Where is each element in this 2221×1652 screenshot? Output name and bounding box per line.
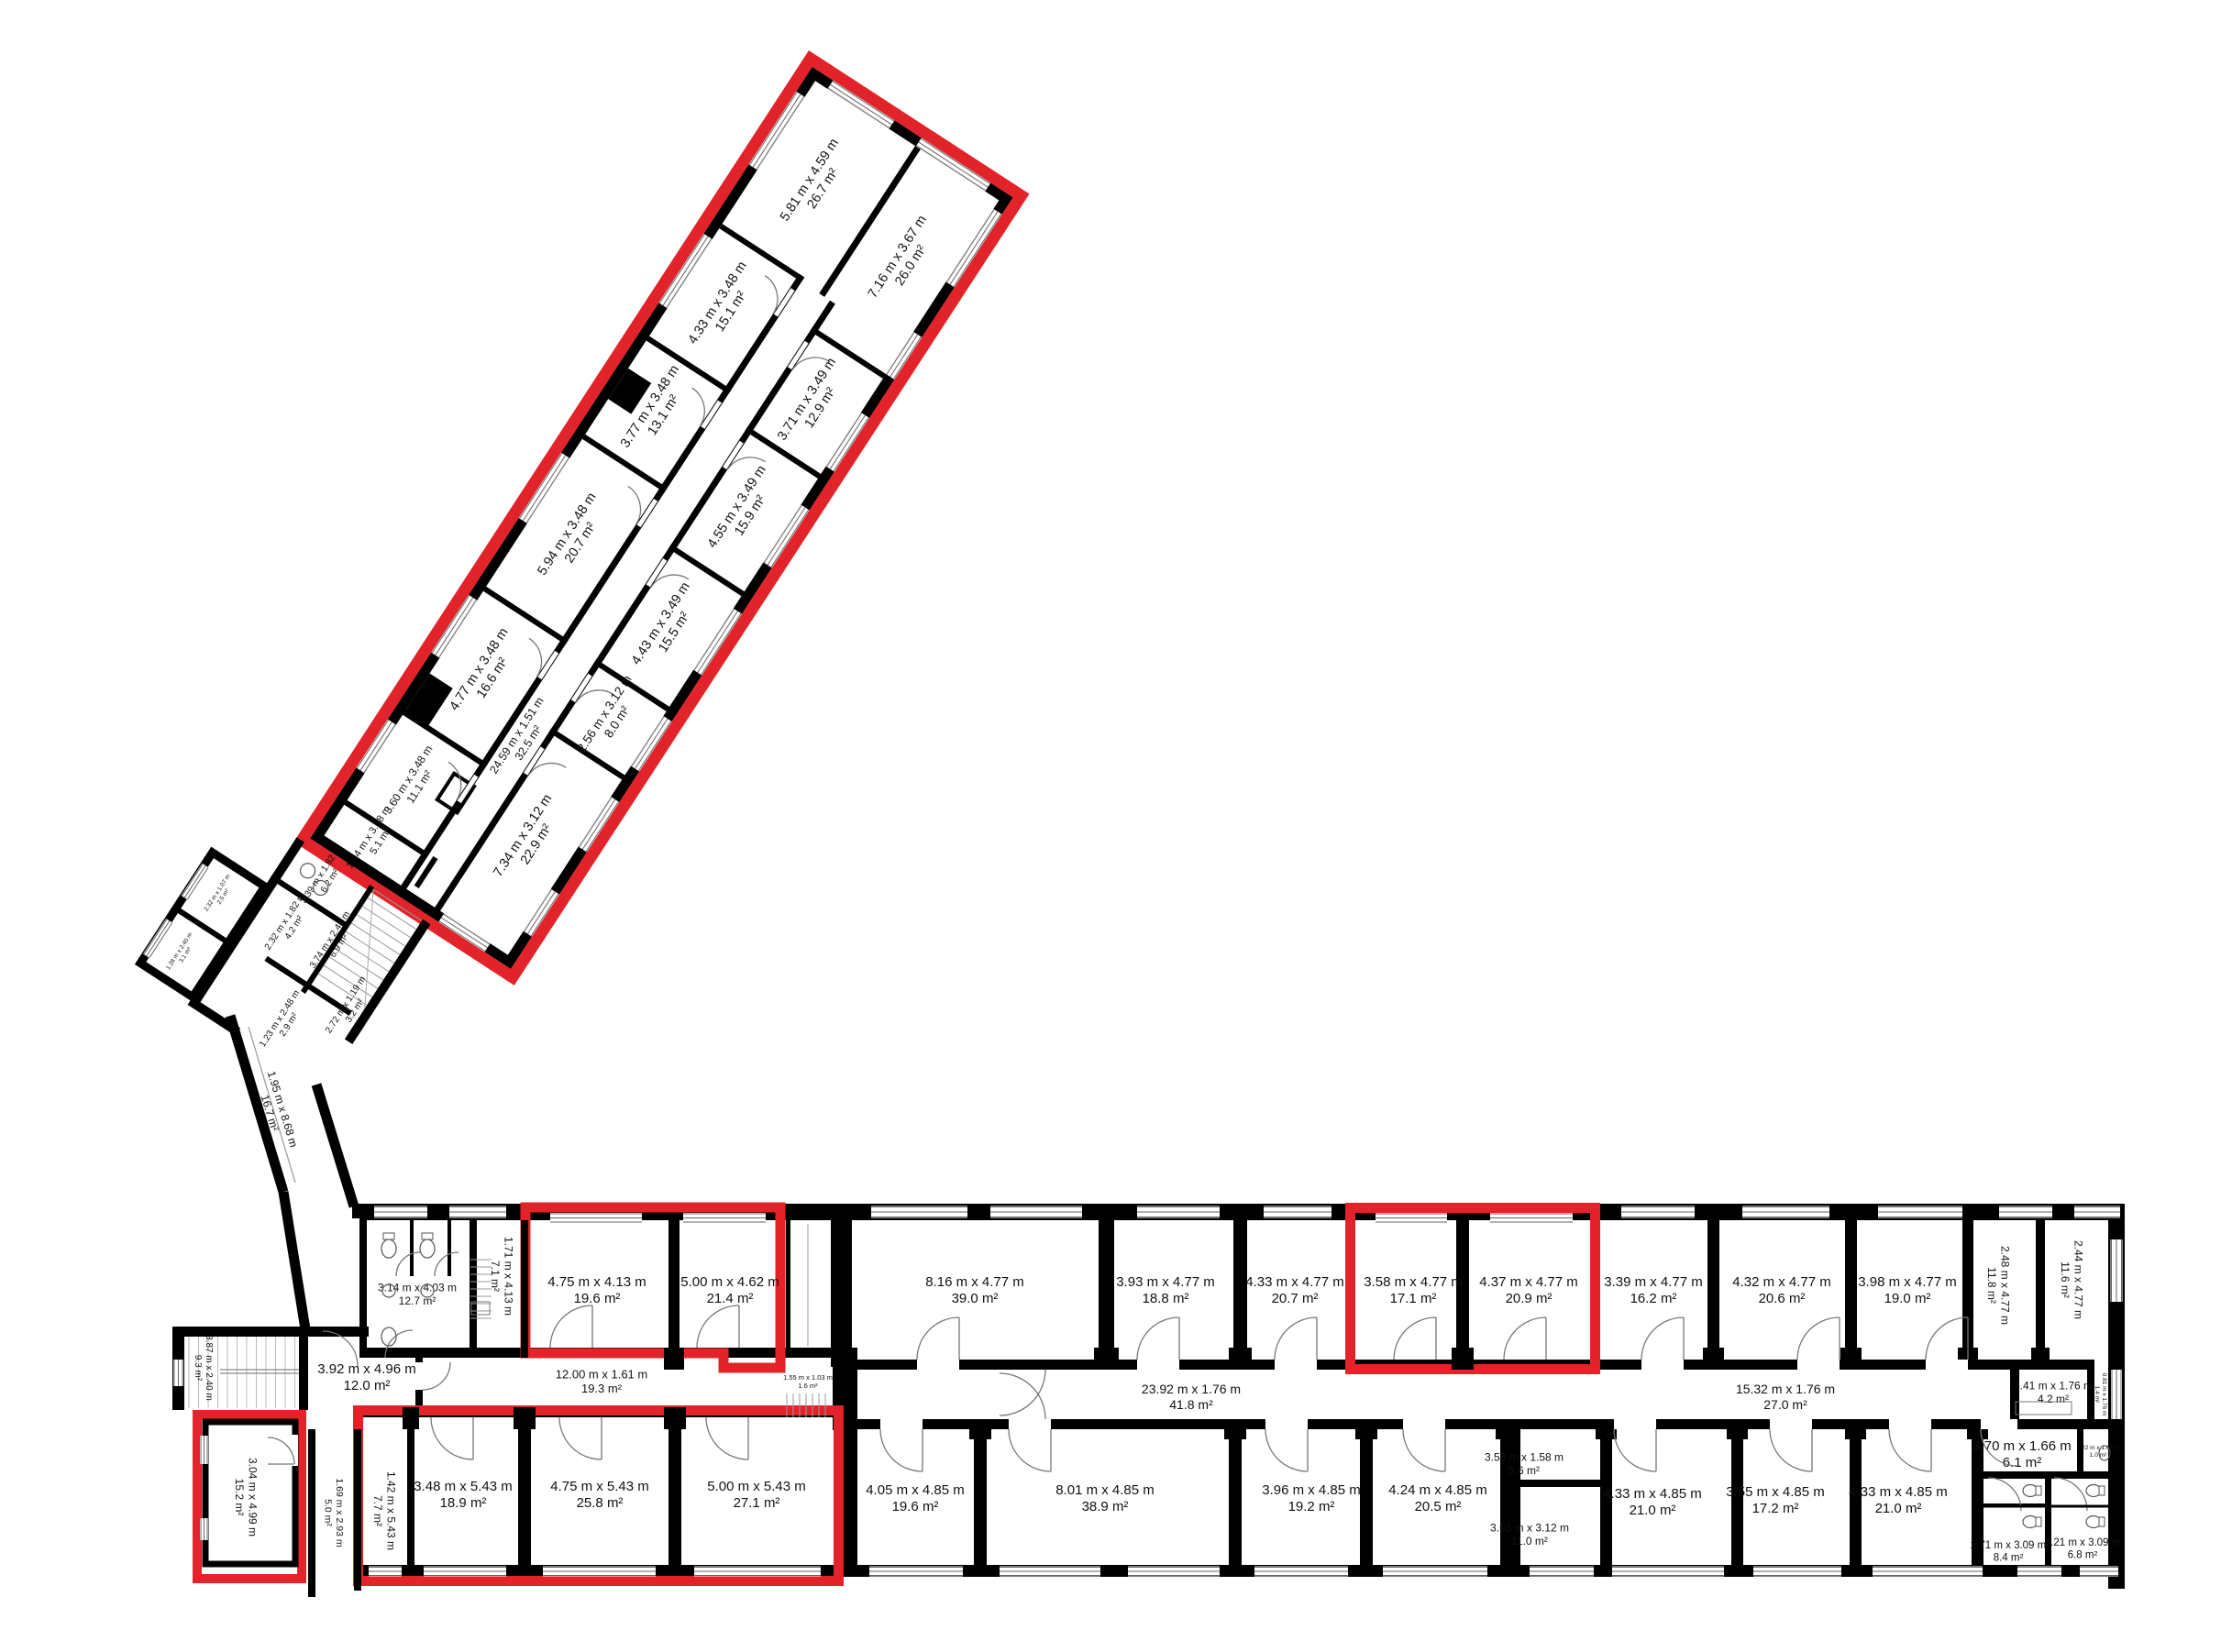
svg-text:38.9 m²: 38.9 m² bbox=[1082, 1499, 1129, 1514]
svg-text:4.32 m x 4.77 m: 4.32 m x 4.77 m bbox=[1732, 1274, 1831, 1290]
svg-text:12.00 m x 1.61 m: 12.00 m x 1.61 m bbox=[556, 1367, 647, 1381]
svg-text:3.92 m x 4.96 m: 3.92 m x 4.96 m bbox=[317, 1361, 416, 1377]
svg-text:27.0 m²: 27.0 m² bbox=[1763, 1397, 1807, 1412]
svg-text:3.53 m x 3.12 m: 3.53 m x 3.12 m bbox=[1490, 1522, 1569, 1535]
svg-text:1.55 m x 1.03 m: 1.55 m x 1.03 m bbox=[783, 1373, 833, 1382]
svg-text:5.00 m x 4.62 m: 5.00 m x 4.62 m bbox=[680, 1274, 779, 1290]
svg-text:2.41 m x 1.76 m: 2.41 m x 1.76 m bbox=[2014, 1380, 2093, 1393]
svg-text:9.3 m²: 9.3 m² bbox=[193, 1355, 203, 1382]
svg-text:4.37 m x 4.77 m: 4.37 m x 4.77 m bbox=[1479, 1274, 1578, 1290]
svg-text:1.6 m²: 1.6 m² bbox=[798, 1382, 818, 1390]
svg-text:3.14 m x 4.03 m: 3.14 m x 4.03 m bbox=[378, 1282, 457, 1294]
svg-text:17.1 m²: 17.1 m² bbox=[1390, 1291, 1437, 1306]
svg-text:17.2 m²: 17.2 m² bbox=[1752, 1501, 1799, 1516]
svg-text:2.21 m x 3.09 m: 2.21 m x 3.09 m bbox=[2045, 1537, 2120, 1548]
svg-text:4.33 m x 4.77 m: 4.33 m x 4.77 m bbox=[1245, 1274, 1344, 1290]
svg-text:25.8 m²: 25.8 m² bbox=[577, 1495, 624, 1511]
svg-text:18.8 m²: 18.8 m² bbox=[1143, 1291, 1189, 1306]
svg-text:4.75 m x 4.13 m: 4.75 m x 4.13 m bbox=[547, 1274, 646, 1290]
svg-text:4.33 m x 4.85 m: 4.33 m x 4.85 m bbox=[1849, 1484, 1948, 1500]
svg-text:16.2 m²: 16.2 m² bbox=[1630, 1291, 1677, 1306]
svg-text:3.98 m x 4.77 m: 3.98 m x 4.77 m bbox=[1858, 1274, 1957, 1290]
svg-text:20.7 m²: 20.7 m² bbox=[1272, 1291, 1319, 1306]
svg-text:15.2 m²: 15.2 m² bbox=[233, 1479, 246, 1516]
svg-text:7.7 m²: 7.7 m² bbox=[371, 1495, 384, 1526]
svg-text:4.05 m x 4.85 m: 4.05 m x 4.85 m bbox=[866, 1482, 965, 1498]
svg-text:27.1 m²: 27.1 m² bbox=[734, 1495, 780, 1511]
svg-text:3.04 m x 4.99 m: 3.04 m x 4.99 m bbox=[246, 1458, 259, 1536]
svg-text:19.6 m²: 19.6 m² bbox=[892, 1499, 939, 1514]
svg-text:2.71 m x 3.09 m: 2.71 m x 3.09 m bbox=[1971, 1540, 2046, 1551]
svg-text:6.8 m²: 6.8 m² bbox=[2068, 1550, 2098, 1561]
svg-text:1.22 m x 1.66 m: 1.22 m x 1.66 m bbox=[2077, 1445, 2120, 1451]
svg-text:19.6 m²: 19.6 m² bbox=[574, 1291, 621, 1306]
svg-text:12.0 m²: 12.0 m² bbox=[344, 1378, 391, 1393]
svg-text:21.0 m²: 21.0 m² bbox=[1875, 1501, 1922, 1516]
svg-text:5.00 m x 5.43 m: 5.00 m x 5.43 m bbox=[707, 1479, 806, 1494]
svg-text:1.69 m x 2.93 m: 1.69 m x 2.93 m bbox=[334, 1478, 345, 1547]
svg-text:19.0 m²: 19.0 m² bbox=[1884, 1291, 1931, 1306]
svg-text:20.5 m²: 20.5 m² bbox=[1415, 1499, 1462, 1514]
svg-text:0.81 m x 1.76 m: 0.81 m x 1.76 m bbox=[2101, 1373, 2107, 1416]
svg-text:3.55 m x 4.85 m: 3.55 m x 4.85 m bbox=[1726, 1484, 1825, 1500]
svg-text:11.6 m²: 11.6 m² bbox=[2059, 1261, 2072, 1298]
svg-text:15.32 m x 1.76 m: 15.32 m x 1.76 m bbox=[1736, 1382, 1835, 1396]
svg-text:19.3 m²: 19.3 m² bbox=[581, 1382, 623, 1395]
svg-text:41.8 m²: 41.8 m² bbox=[1169, 1397, 1213, 1412]
svg-text:5.0 m²: 5.0 m² bbox=[322, 1499, 333, 1526]
svg-text:3.96 m x 4.85 m: 3.96 m x 4.85 m bbox=[1262, 1482, 1361, 1498]
svg-text:3.53 m x 1.58 m: 3.53 m x 1.58 m bbox=[1485, 1451, 1564, 1464]
svg-text:5.6 m²: 5.6 m² bbox=[1508, 1464, 1540, 1477]
svg-text:23.92 m x 1.76 m: 23.92 m x 1.76 m bbox=[1142, 1382, 1241, 1396]
svg-text:7.1 m²: 7.1 m² bbox=[489, 1261, 502, 1292]
svg-text:3.87 m x 2.40 m: 3.87 m x 2.40 m bbox=[204, 1335, 214, 1401]
svg-text:4.75 m x 5.43 m: 4.75 m x 5.43 m bbox=[550, 1479, 649, 1494]
svg-text:8.01 m x 4.85 m: 8.01 m x 4.85 m bbox=[1055, 1482, 1155, 1498]
svg-text:3.48 m x 5.43 m: 3.48 m x 5.43 m bbox=[414, 1479, 513, 1494]
svg-text:4.2 m²: 4.2 m² bbox=[2038, 1393, 2069, 1405]
svg-text:1.4 m²: 1.4 m² bbox=[2094, 1386, 2100, 1404]
svg-text:3.93 m x 4.77 m: 3.93 m x 4.77 m bbox=[1116, 1274, 1215, 1290]
svg-text:18.9 m²: 18.9 m² bbox=[440, 1495, 487, 1511]
svg-text:11.8 m²: 11.8 m² bbox=[1985, 1267, 1998, 1304]
svg-text:4.24 m x 4.85 m: 4.24 m x 4.85 m bbox=[1388, 1482, 1487, 1498]
svg-text:20.9 m²: 20.9 m² bbox=[1506, 1291, 1552, 1306]
svg-text:8.4 m²: 8.4 m² bbox=[1994, 1553, 2024, 1564]
svg-text:4.33 m x 4.85 m: 4.33 m x 4.85 m bbox=[1603, 1486, 1702, 1502]
svg-text:20.6 m²: 20.6 m² bbox=[1759, 1291, 1806, 1306]
svg-text:21.0 m²: 21.0 m² bbox=[1630, 1503, 1676, 1518]
svg-text:39.0 m²: 39.0 m² bbox=[952, 1291, 999, 1306]
svg-text:3.58 m x 4.77 m: 3.58 m x 4.77 m bbox=[1364, 1274, 1463, 1290]
svg-text:6.1 m²: 6.1 m² bbox=[2003, 1455, 2042, 1470]
svg-text:11.0 m²: 11.0 m² bbox=[1511, 1535, 1548, 1547]
svg-text:2.44 m x 4.77 m: 2.44 m x 4.77 m bbox=[2072, 1240, 2084, 1319]
svg-text:1.71 m x 4.13 m: 1.71 m x 4.13 m bbox=[502, 1237, 514, 1316]
svg-text:3.39 m x 4.77 m: 3.39 m x 4.77 m bbox=[1604, 1274, 1703, 1290]
svg-text:19.2 m²: 19.2 m² bbox=[1288, 1499, 1335, 1514]
svg-text:8.16 m x 4.77 m: 8.16 m x 4.77 m bbox=[925, 1274, 1024, 1290]
svg-text:21.4 m²: 21.4 m² bbox=[707, 1291, 754, 1306]
svg-text:1.42 m x 5.43 m: 1.42 m x 5.43 m bbox=[384, 1471, 397, 1550]
svg-text:2.48 m x 4.77 m: 2.48 m x 4.77 m bbox=[1998, 1246, 2011, 1325]
